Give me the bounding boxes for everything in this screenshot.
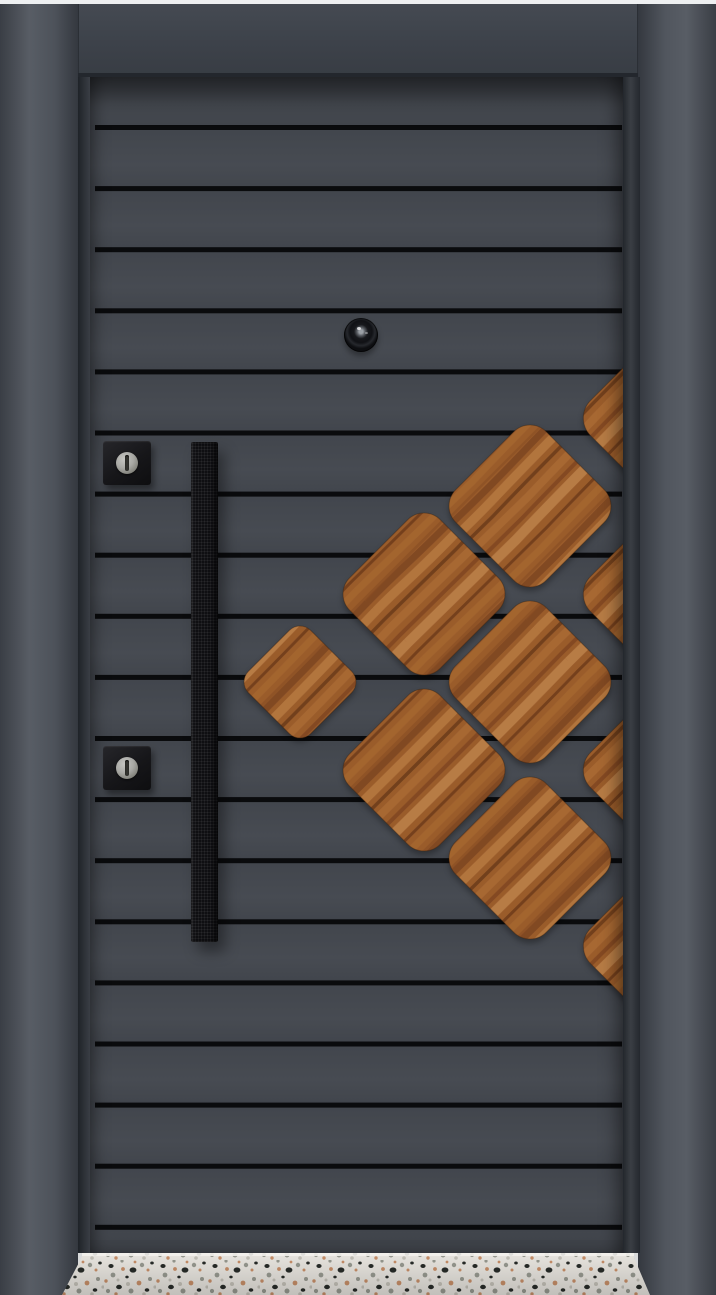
groove-line: [95, 308, 622, 313]
door-decor-layer: [0, 0, 716, 1295]
groove-line: [95, 369, 622, 374]
threshold-step: [62, 1253, 650, 1295]
threshold-shading: [62, 1253, 650, 1295]
peephole-glint: [357, 327, 361, 330]
keyhole-slot-icon: [125, 455, 129, 471]
groove-line: [95, 125, 622, 130]
groove-line: [95, 186, 622, 191]
peephole-glint: [365, 332, 368, 334]
groove-line: [95, 1042, 622, 1047]
lock-escutcheon-lower[interactable]: [103, 746, 151, 790]
threshold-top-highlight: [82, 1253, 634, 1256]
groove-line: [95, 1103, 622, 1108]
keyhole-slot-icon: [125, 760, 129, 776]
lock-escutcheon-upper[interactable]: [103, 441, 151, 485]
groove-line: [95, 1164, 622, 1169]
door-product-photo: [0, 0, 716, 1295]
lock-cylinder-icon[interactable]: [116, 757, 138, 779]
groove-line: [95, 1225, 622, 1230]
wood-inlay-layer: [238, 319, 716, 1045]
lock-cylinder-icon[interactable]: [116, 452, 138, 474]
groove-line: [95, 980, 622, 985]
peephole-viewer: [344, 318, 378, 352]
wood-diamond: [238, 620, 362, 744]
groove-line: [95, 247, 622, 252]
door-pull-handle[interactable]: [191, 442, 218, 942]
